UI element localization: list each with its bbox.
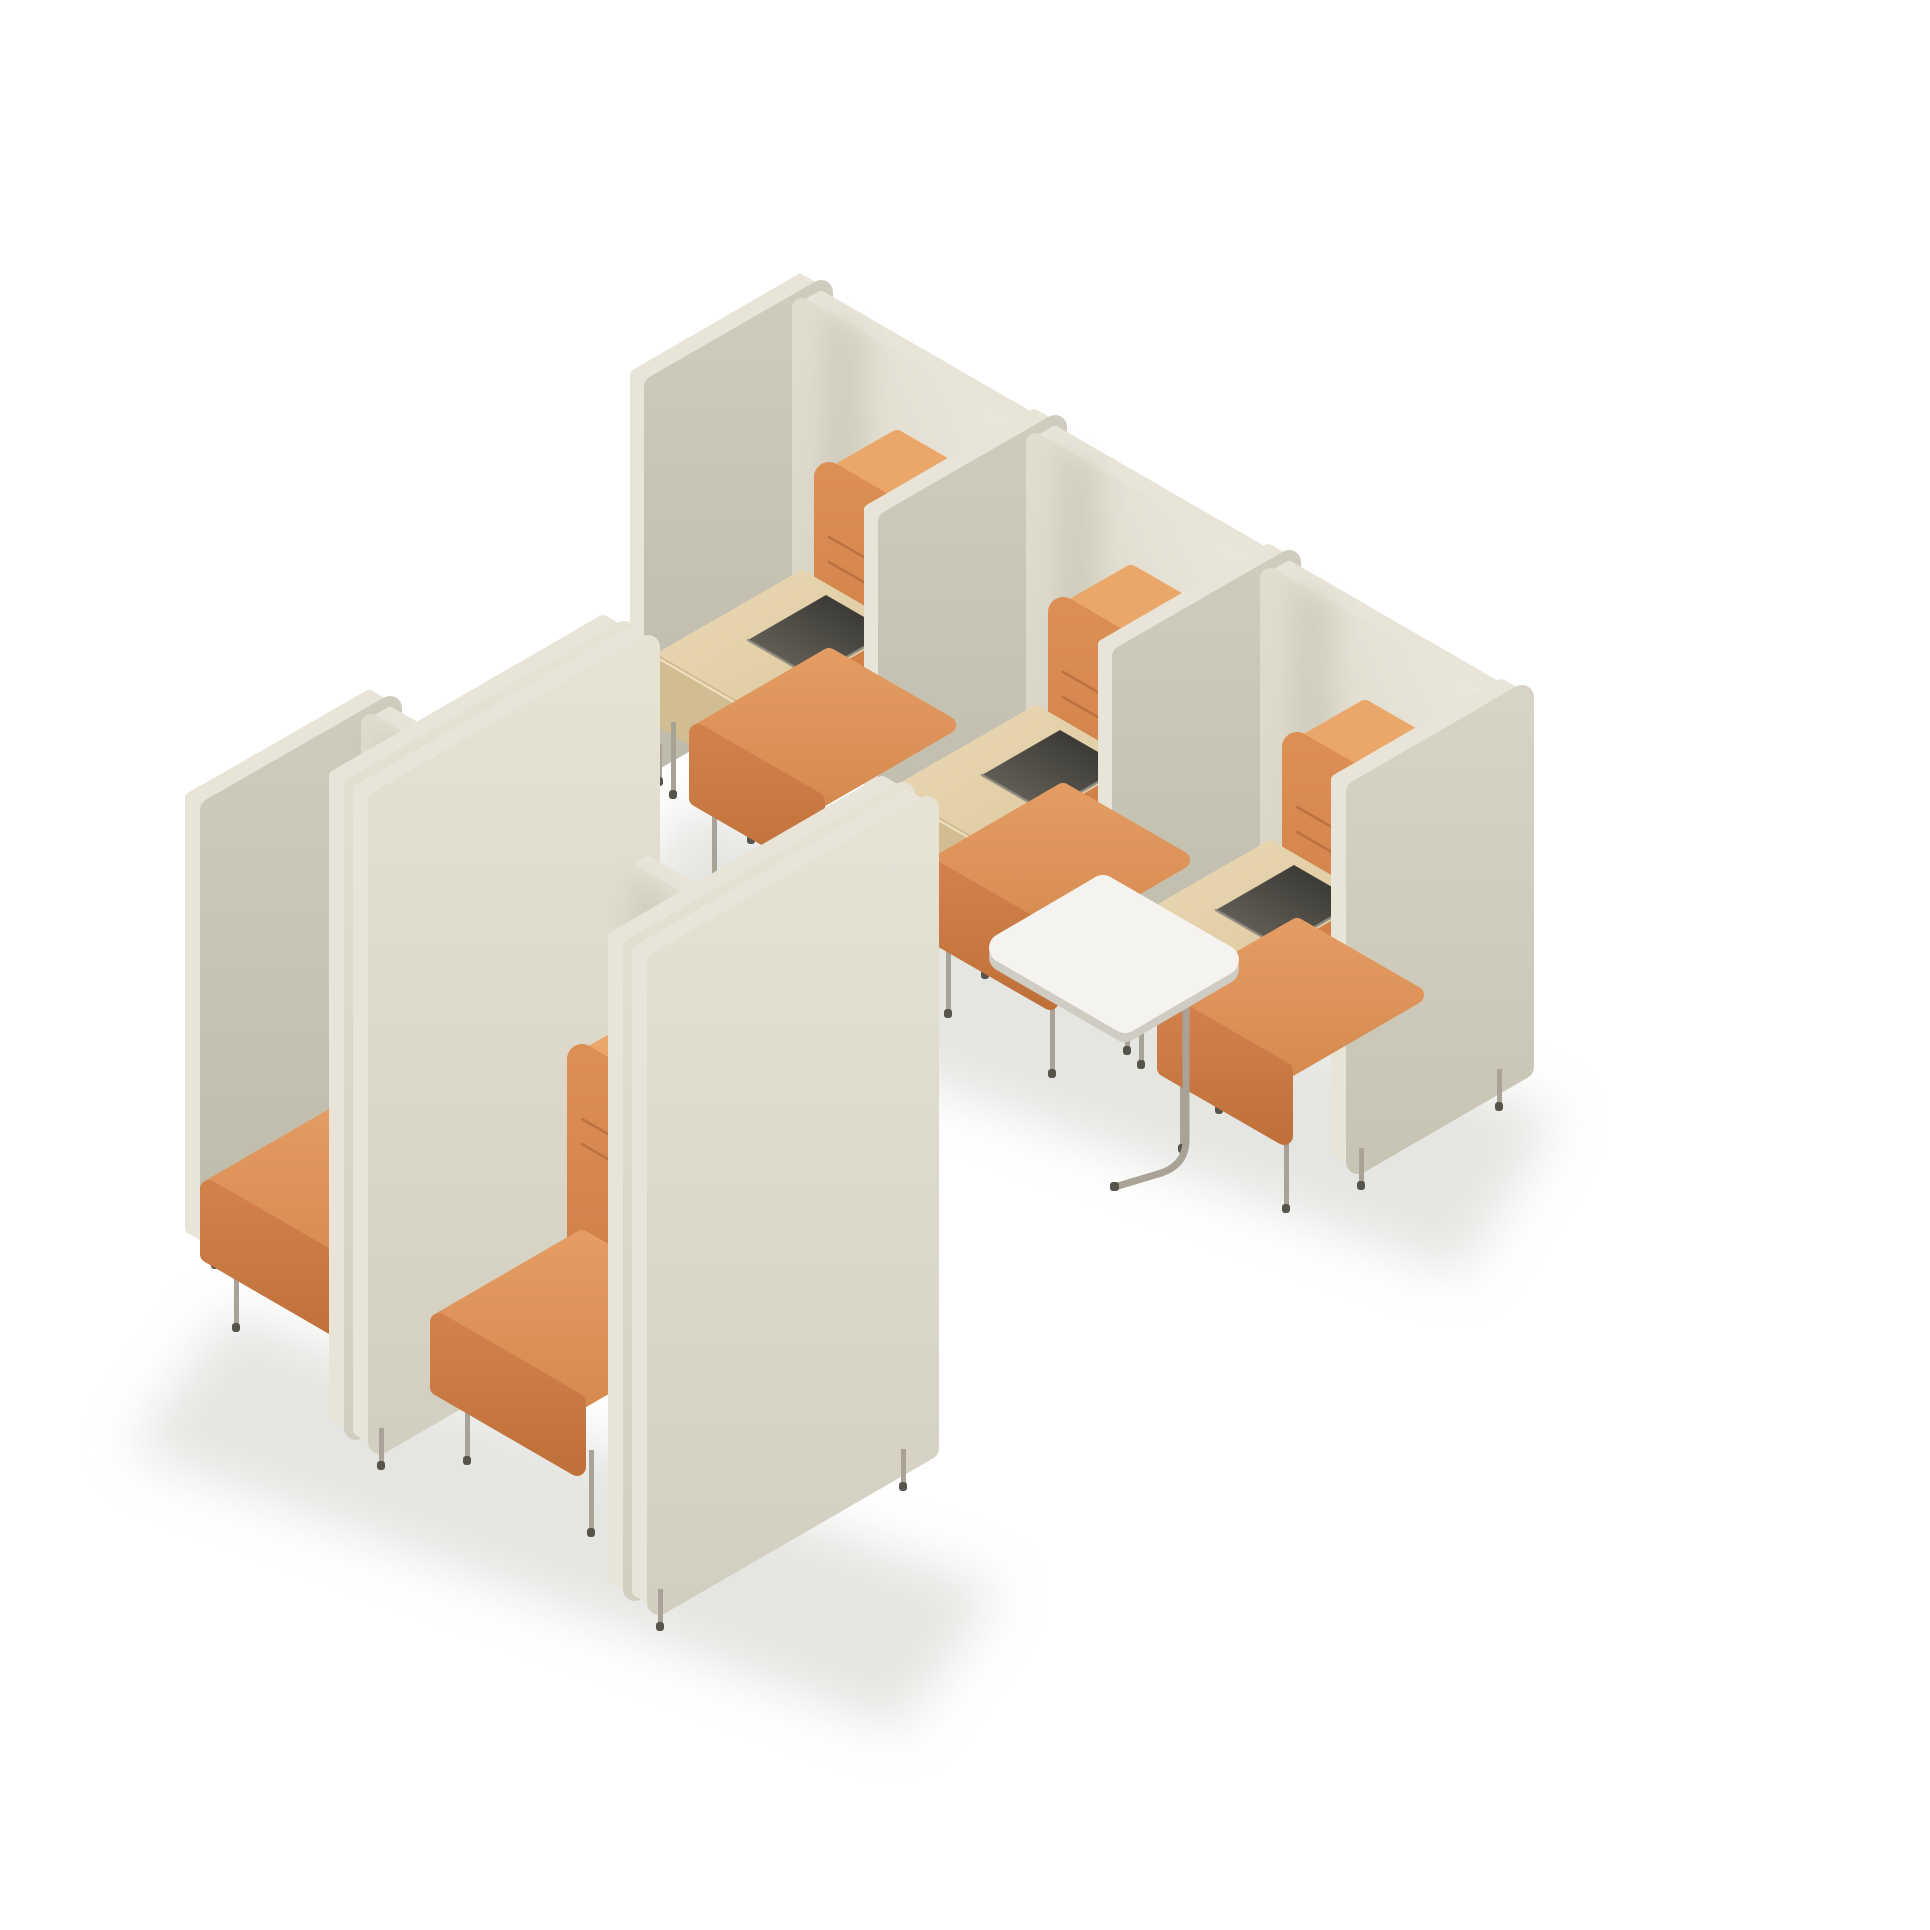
leg-foot bbox=[463, 1456, 471, 1465]
leg-foot bbox=[377, 1461, 385, 1470]
leg-foot bbox=[1110, 1182, 1119, 1191]
leg-foot bbox=[1137, 1060, 1145, 1069]
leg-foot bbox=[944, 1009, 952, 1018]
tall-screen bbox=[659, 808, 927, 1603]
leg-foot bbox=[1123, 1046, 1131, 1055]
leg-foot bbox=[1357, 1181, 1365, 1190]
leg-foot bbox=[587, 1528, 595, 1537]
table-leg bbox=[671, 722, 676, 797]
leg-foot bbox=[656, 1622, 664, 1631]
render-stage bbox=[0, 0, 1930, 1930]
leg-foot bbox=[1495, 1102, 1503, 1111]
booth-scene bbox=[0, 0, 1930, 1930]
leg-foot bbox=[669, 790, 677, 799]
leg-foot bbox=[1282, 1204, 1290, 1213]
leg-foot bbox=[899, 1482, 907, 1491]
leg-foot bbox=[232, 1323, 240, 1332]
seat-leg bbox=[589, 1450, 594, 1535]
leg-foot bbox=[1048, 1069, 1056, 1078]
